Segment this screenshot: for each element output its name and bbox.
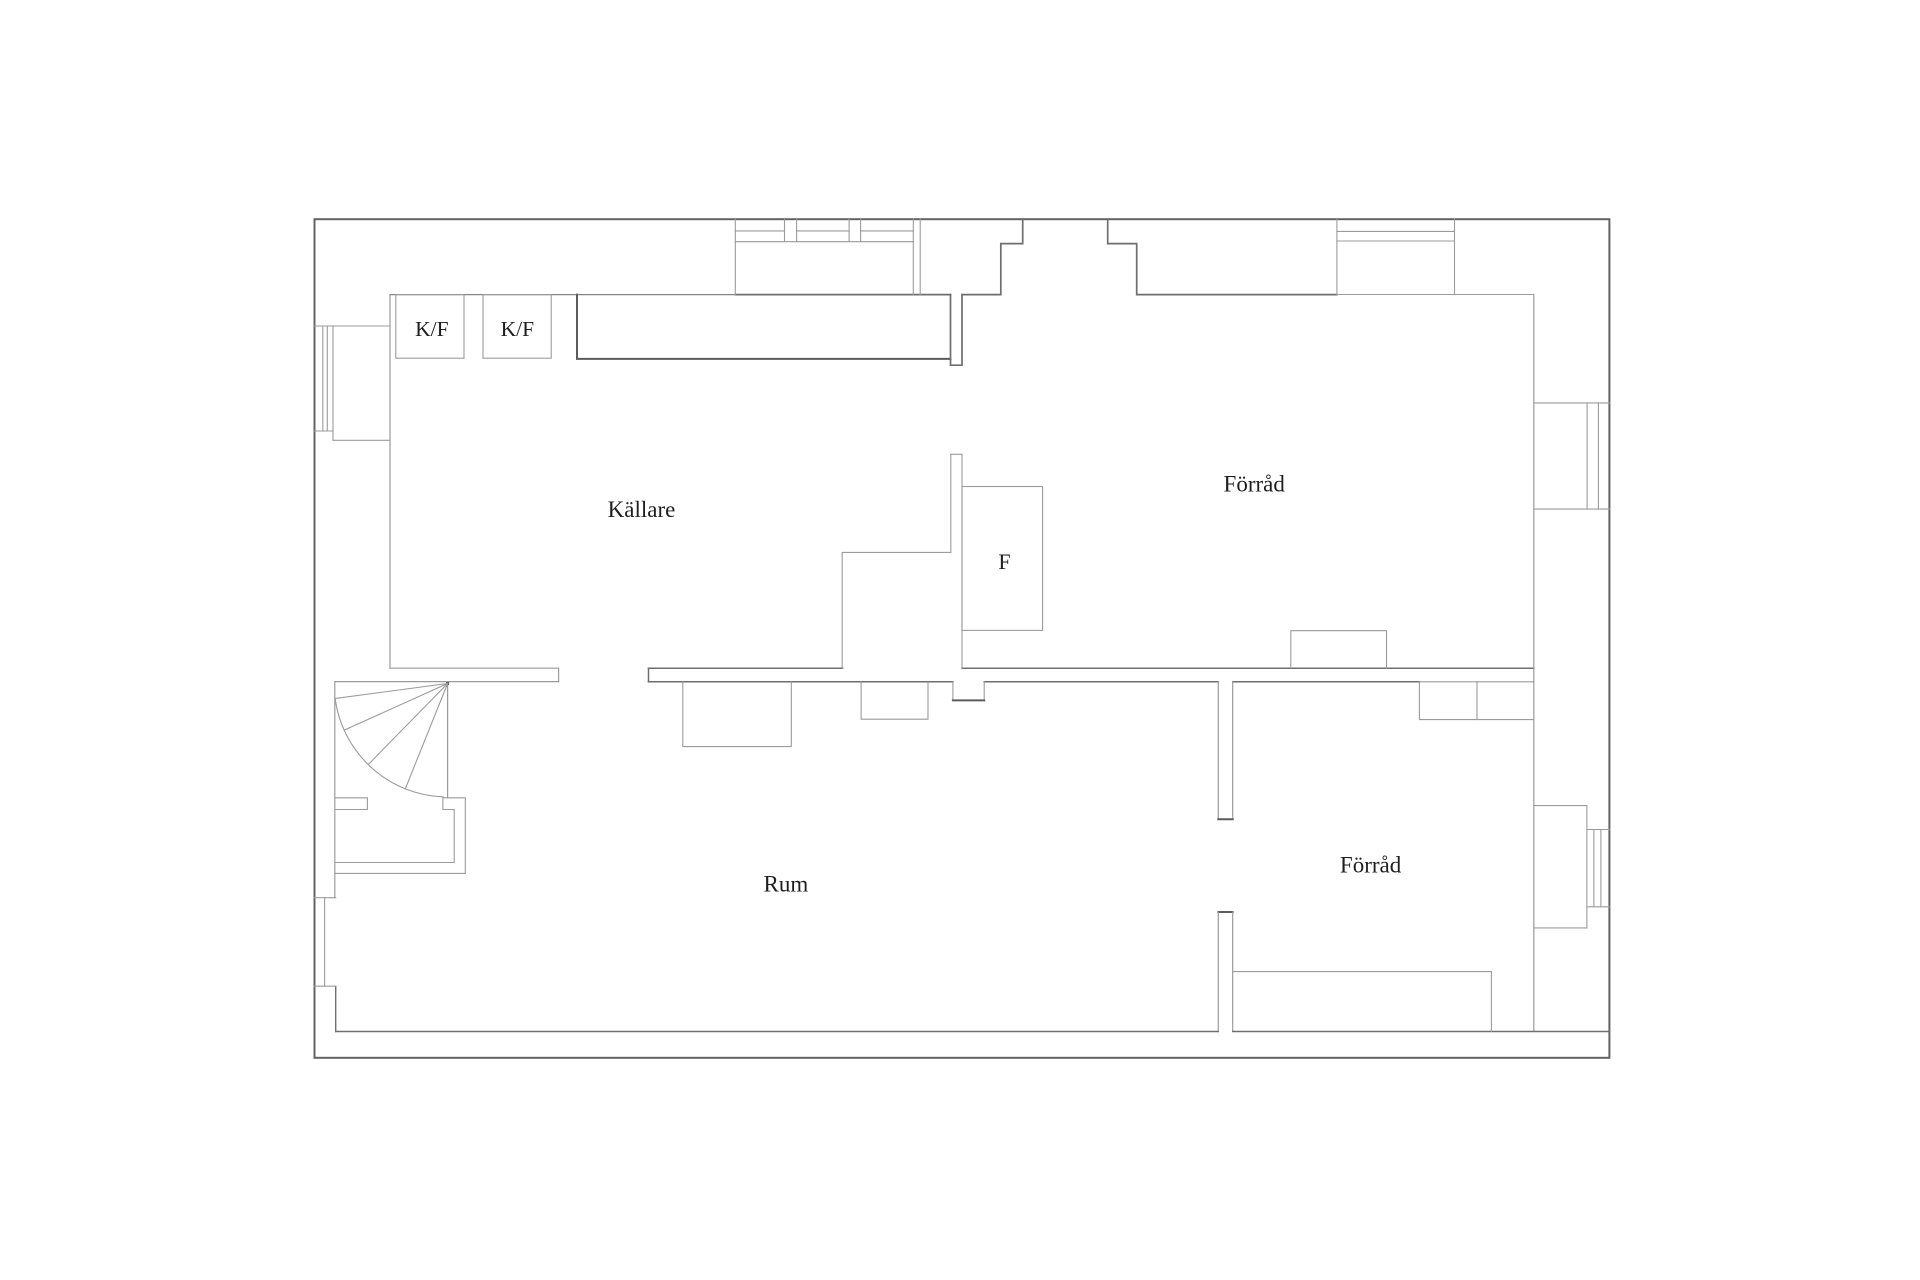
- svg-text:Förråd: Förråd: [1340, 852, 1402, 877]
- svg-text:Förråd: Förråd: [1224, 471, 1286, 496]
- svg-text:F: F: [998, 549, 1010, 574]
- svg-text:K/F: K/F: [501, 317, 535, 341]
- svg-text:Rum: Rum: [764, 872, 809, 897]
- svg-text:K/F: K/F: [415, 317, 449, 341]
- svg-text:Källare: Källare: [608, 497, 676, 522]
